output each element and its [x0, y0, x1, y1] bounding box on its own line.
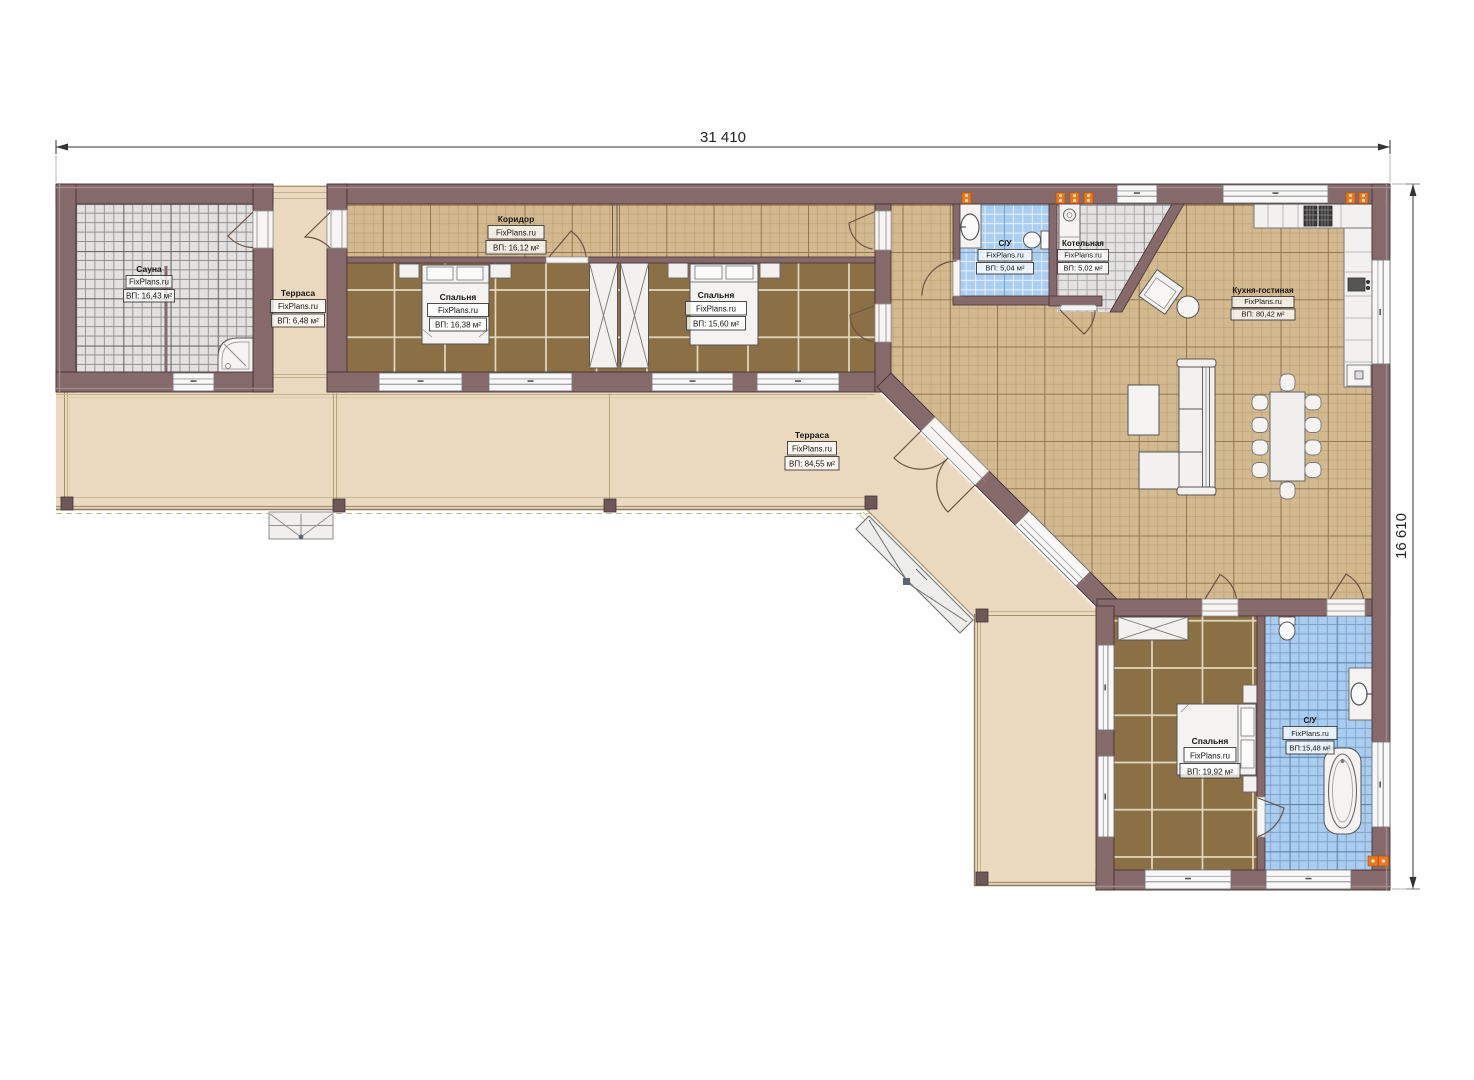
svg-text:FixPlans.ru: FixPlans.ru: [129, 278, 169, 287]
svg-text:С/У: С/У: [999, 239, 1013, 248]
svg-text:Спальня: Спальня: [698, 290, 735, 300]
svg-text:FixPlans.ru: FixPlans.ru: [986, 251, 1024, 260]
svg-text:FixPlans.ru: FixPlans.ru: [792, 445, 832, 454]
svg-text:Терраса: Терраса: [795, 430, 829, 440]
svg-text:Сауна: Сауна: [136, 264, 162, 274]
svg-text:С/У: С/У: [1304, 716, 1318, 725]
svg-text:FixPlans.ru: FixPlans.ru: [438, 306, 478, 315]
svg-text:FixPlans.ru: FixPlans.ru: [278, 302, 318, 311]
svg-text:FixPlans.ru: FixPlans.ru: [1190, 752, 1230, 761]
svg-text:FixPlans.ru: FixPlans.ru: [696, 305, 736, 314]
svg-text:FixPlans.ru: FixPlans.ru: [1064, 251, 1102, 260]
svg-text:ВП: 84,55 м²: ВП: 84,55 м²: [789, 460, 835, 469]
svg-text:FixPlans.ru: FixPlans.ru: [1291, 729, 1329, 738]
svg-text:Спальня: Спальня: [440, 292, 477, 302]
svg-text:ВП: 5,04 м²: ВП: 5,04 м²: [986, 264, 1025, 273]
svg-text:ВП: 5,02 м²: ВП: 5,02 м²: [1064, 264, 1103, 273]
svg-text:ВП: 6,48 м²: ВП: 6,48 м²: [277, 317, 319, 326]
svg-text:ВП:15,48 м²: ВП:15,48 м²: [1290, 744, 1331, 753]
svg-text:ВП: 15,60 м²: ВП: 15,60 м²: [693, 320, 739, 329]
svg-text:16 610: 16 610: [1393, 513, 1410, 559]
svg-text:FixPlans.ru: FixPlans.ru: [1244, 297, 1282, 306]
svg-text:Кухня-гостиная: Кухня-гостиная: [1232, 286, 1294, 295]
svg-text:ВП: 16,43 м²: ВП: 16,43 м²: [126, 292, 172, 301]
svg-text:FixPlans.ru: FixPlans.ru: [496, 229, 536, 238]
svg-text:ВП: 19,92 м²: ВП: 19,92 м²: [1187, 768, 1233, 777]
svg-text:Коридор: Коридор: [498, 214, 535, 224]
svg-text:Котельная: Котельная: [1062, 239, 1104, 248]
svg-text:ВП: 80,42 м²: ВП: 80,42 м²: [1241, 310, 1285, 319]
svg-text:31 410: 31 410: [700, 129, 746, 146]
svg-text:Спальня: Спальня: [1192, 736, 1229, 746]
svg-text:ВП: 16,38 м²: ВП: 16,38 м²: [435, 321, 481, 330]
svg-text:Терраса: Терраса: [281, 288, 315, 298]
svg-text:ВП: 16,12 м²: ВП: 16,12 м²: [493, 244, 539, 253]
